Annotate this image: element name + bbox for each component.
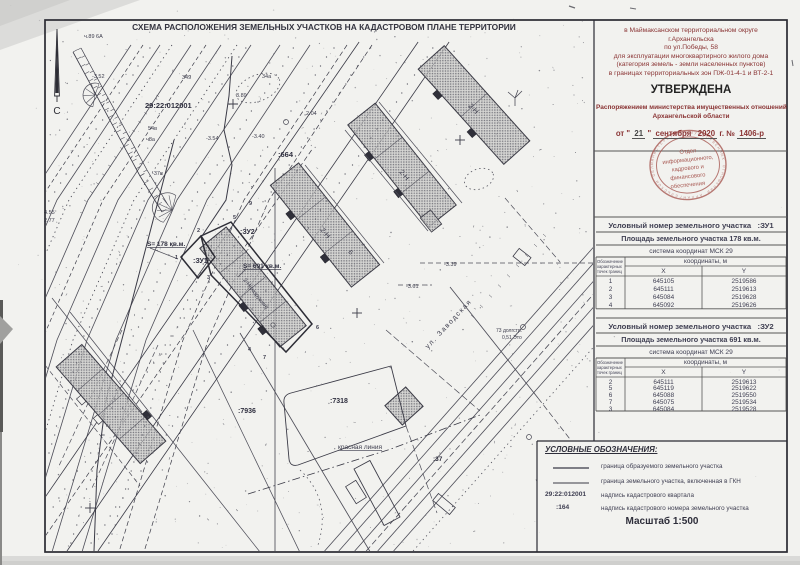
svg-text::7318: :7318	[330, 398, 348, 405]
svg-text:2: 2	[197, 228, 200, 234]
svg-text:29:22:012001: 29:22:012001	[145, 101, 192, 110]
svg-text:1: 1	[175, 255, 178, 261]
svg-text:-3.40: -3.40	[252, 134, 265, 140]
svg-text:С: С	[53, 106, 60, 117]
svg-text:5: 5	[233, 215, 236, 221]
svg-text:М: М	[650, 162, 654, 165]
svg-text:73 долгстр.: 73 долгстр.	[496, 328, 522, 334]
svg-text:349: 349	[182, 75, 191, 81]
svg-text::37: :37	[433, 456, 443, 463]
svg-text:3: 3	[207, 275, 210, 281]
svg-text:-3.39: -3.39	[444, 262, 457, 268]
svg-text:ч.89 6А: ч.89 6А	[84, 34, 103, 40]
svg-text:S= 178 кв.м.: S= 178 кв.м.	[147, 241, 185, 248]
svg-text:6: 6	[316, 325, 319, 331]
svg-text:ч8а: ч8а	[146, 137, 156, 143]
svg-text::664: :664	[278, 150, 294, 159]
svg-text:-37в: -37в	[152, 171, 163, 177]
svg-text::ЗУ2: :ЗУ2	[240, 229, 255, 236]
svg-text:34а: 34а	[262, 74, 272, 80]
svg-text::ЗУ1: :ЗУ1	[193, 258, 208, 265]
svg-text:красная линия: красная линия	[338, 444, 382, 451]
svg-text::7936: :7936	[238, 408, 256, 415]
svg-text:-3.52: -3.52	[92, 74, 105, 80]
svg-text:9: 9	[249, 201, 252, 207]
svg-text:О: О	[722, 165, 726, 168]
svg-text:СХЕМА РАСПОЛОЖЕНИЯ ЗЕМЕЛЬНЫХ У: СХЕМА РАСПОЛОЖЕНИЯ ЗЕМЕЛЬНЫХ УЧАСТКОВ НА…	[132, 22, 516, 32]
svg-text:S= 691 кв.м.: S= 691 кв.м.	[243, 263, 281, 270]
svg-text:54в: 54в	[148, 126, 157, 132]
svg-text:-3.61: -3.61	[406, 284, 419, 290]
svg-text:7: 7	[263, 355, 266, 361]
svg-text:2.04: 2.04	[306, 111, 317, 117]
svg-text:0,51 Это: 0,51 Это	[502, 335, 522, 341]
svg-text:-3.54: -3.54	[206, 136, 219, 142]
svg-text:3.89: 3.89	[236, 93, 247, 99]
